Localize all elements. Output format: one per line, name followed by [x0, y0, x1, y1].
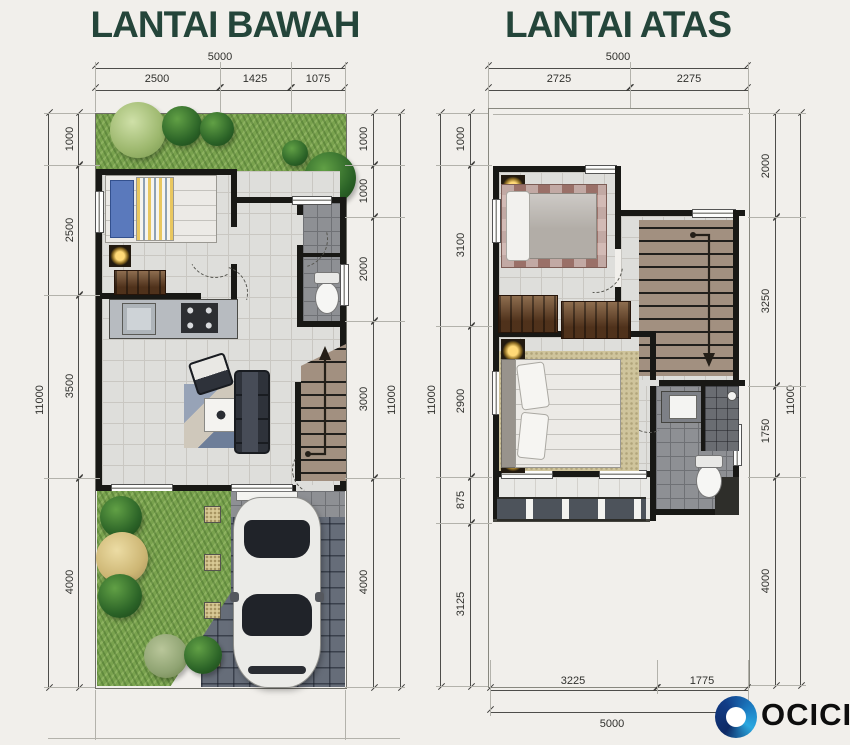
bush	[184, 636, 222, 674]
bush	[162, 106, 202, 146]
ocicio-logo-text: OCICIO	[761, 697, 850, 733]
wardrobe	[114, 270, 166, 295]
stairs-down-arrow-icon	[679, 221, 739, 371]
floor-title-lantai-atas: LANTAI ATAS	[505, 4, 731, 46]
bed-pillow	[517, 412, 550, 461]
window	[340, 264, 349, 306]
car-grille	[248, 666, 306, 674]
shower-head	[727, 391, 737, 401]
dimension-line	[78, 165, 79, 295]
bathroom-wall	[297, 321, 346, 327]
extension-line	[748, 62, 749, 108]
bed-pillow	[506, 191, 530, 261]
car-mirror-right	[315, 592, 324, 602]
dimension-line	[775, 113, 776, 217]
bush	[144, 634, 188, 678]
roof-outline	[493, 114, 743, 115]
extension-line	[291, 62, 292, 112]
extension-line	[436, 113, 488, 114]
extension-line	[95, 690, 96, 740]
dimension-line	[373, 217, 374, 321]
dimension-label: 4000	[64, 570, 76, 594]
extension-line	[630, 62, 631, 108]
stove	[181, 303, 218, 333]
toilet-tank	[695, 455, 723, 468]
extension-line	[436, 477, 492, 478]
dimension-line	[373, 321, 374, 478]
dimension-label: 2500	[64, 218, 76, 242]
extension-line	[345, 478, 405, 479]
sink	[669, 395, 697, 419]
bush	[110, 102, 166, 158]
car-mirror-left	[230, 592, 239, 602]
void-wall	[615, 166, 621, 216]
bush	[98, 574, 142, 618]
dimension-label: 3125	[455, 592, 467, 616]
dimension-line	[800, 113, 801, 685]
nightstand-lamp	[109, 245, 131, 267]
dimension-label: 1000	[455, 127, 467, 151]
extension-line	[657, 660, 658, 694]
dimension-label: 4000	[358, 570, 370, 594]
dimension-line	[78, 113, 79, 165]
dimension-label: 11000	[785, 385, 797, 415]
exterior-wall	[733, 210, 739, 515]
dimension-line	[490, 690, 657, 691]
bed-pillow	[110, 180, 134, 238]
dimension-label: 3225	[561, 675, 585, 687]
extension-line	[345, 62, 346, 112]
dimension-label: 2500	[145, 73, 169, 85]
dimension-label: 3100	[455, 233, 467, 257]
dimension-label: 2000	[760, 154, 772, 178]
floorplan-canvas: LANTAI BAWAH LANTAI ATAS	[0, 0, 850, 745]
car-rear-window	[244, 520, 310, 558]
dimension-label: 11000	[426, 385, 438, 415]
dimension-label: 4000	[760, 569, 772, 593]
extension-line	[436, 326, 492, 327]
kitchen-sink	[122, 303, 156, 335]
dimension-label: 3250	[760, 289, 772, 313]
dimension-line	[657, 690, 748, 691]
dimension-label: 2900	[455, 389, 467, 413]
car-windshield	[242, 594, 312, 636]
dimension-line	[470, 523, 471, 686]
extension-line	[345, 687, 405, 688]
dimension-line	[373, 113, 374, 165]
extension-line	[345, 165, 405, 166]
dimension-label: 2000	[358, 257, 370, 281]
dimension-line	[470, 165, 471, 326]
dimension-line	[488, 68, 748, 69]
dimension-label: 3500	[64, 374, 76, 398]
extension-line	[44, 295, 100, 296]
dimension-line	[78, 478, 79, 687]
dimension-label: 1075	[306, 73, 330, 85]
extension-line	[345, 321, 405, 322]
extension-line	[748, 113, 806, 114]
dimension-label: 5000	[606, 51, 630, 63]
extension-line	[345, 113, 405, 114]
extension-line	[490, 660, 491, 716]
bed-blanket-striped	[136, 177, 174, 241]
paving-accent	[204, 602, 221, 619]
extension-line	[95, 62, 96, 112]
extension-line	[220, 62, 221, 112]
bush	[282, 140, 308, 166]
dimension-label: 3000	[358, 387, 370, 411]
floor-title-lantai-bawah: LANTAI BAWAH	[91, 4, 360, 46]
sofa	[234, 370, 270, 454]
window	[492, 199, 501, 243]
paving-accent	[204, 554, 221, 571]
dimension-line	[775, 386, 776, 477]
extension-line	[748, 386, 806, 387]
wardrobe	[498, 295, 558, 333]
paving-accent	[204, 506, 221, 523]
toilet-tank	[314, 272, 340, 284]
window	[599, 470, 647, 479]
lantai-atas-plan	[488, 108, 750, 688]
dimension-line	[373, 478, 374, 687]
dimension-line	[775, 217, 776, 386]
dimension-line	[470, 477, 471, 523]
window	[292, 196, 332, 205]
dimension-label: 2275	[677, 73, 701, 85]
dimension-line	[490, 712, 748, 713]
extension-line	[44, 165, 100, 166]
dimension-line	[488, 90, 630, 91]
dimension-line	[630, 90, 748, 91]
extension-line	[436, 165, 492, 166]
extension-line	[44, 113, 95, 114]
extension-line	[488, 62, 489, 108]
dimension-line	[775, 477, 776, 685]
bush	[200, 112, 234, 146]
dimension-label: 1775	[690, 675, 714, 687]
ocicio-logo-icon	[715, 696, 757, 738]
wardrobe	[561, 301, 631, 339]
bed-mattress	[527, 193, 597, 259]
window	[95, 191, 104, 233]
extension-line	[436, 686, 488, 687]
extension-line	[44, 478, 100, 479]
dimension-line	[373, 165, 374, 217]
dimension-line	[291, 90, 345, 91]
dimension-line	[400, 113, 401, 687]
window	[692, 209, 736, 218]
dimension-label: 11000	[386, 385, 398, 415]
extension-line	[748, 685, 806, 686]
dimension-label: 1000	[358, 127, 370, 151]
extension-line	[48, 738, 400, 739]
window	[585, 165, 617, 174]
extension-line	[748, 477, 806, 478]
bedroom-wall	[231, 175, 237, 227]
extension-line	[436, 523, 492, 524]
extension-line	[345, 690, 346, 740]
dimension-line	[78, 295, 79, 478]
dimension-label: 2725	[547, 73, 571, 85]
lantai-bawah-plan	[95, 113, 347, 689]
toilet	[696, 464, 722, 498]
dimension-label: 875	[455, 491, 467, 509]
dimension-label: 5000	[600, 718, 624, 730]
dimension-line	[470, 326, 471, 477]
dimension-line	[95, 90, 220, 91]
dimension-label: 1750	[760, 419, 772, 443]
dimension-label: 1000	[64, 127, 76, 151]
bedroom2-wall	[615, 216, 621, 249]
dimension-label: 1425	[243, 73, 267, 85]
extension-line	[345, 217, 405, 218]
extension-line	[44, 687, 95, 688]
dimension-line	[470, 113, 471, 165]
car	[234, 498, 320, 687]
dimension-label: 1000	[358, 179, 370, 203]
dimension-line	[48, 113, 49, 687]
dimension-line	[440, 113, 441, 686]
coffee-table	[204, 398, 238, 432]
balcony-railing	[497, 497, 646, 521]
dimension-line	[220, 90, 291, 91]
toilet	[315, 282, 339, 314]
dimension-label: 11000	[34, 385, 46, 415]
extension-line	[748, 217, 806, 218]
